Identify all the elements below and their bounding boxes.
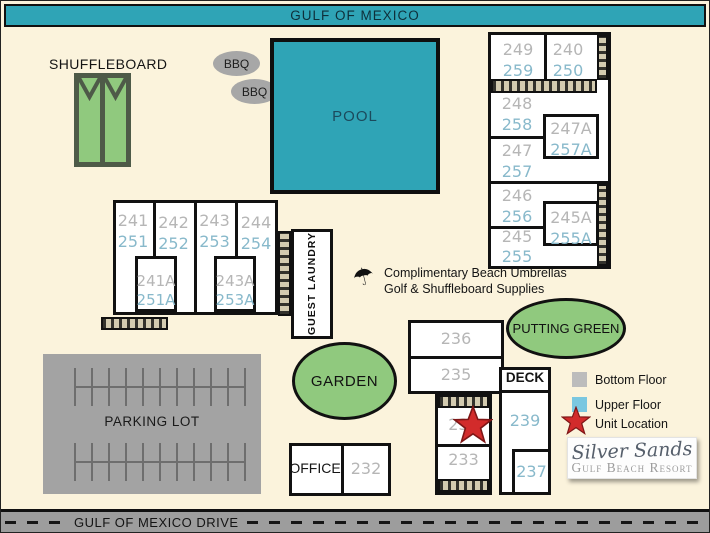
gulf-of-mexico-drive: GULF OF MEXICO DRIVE — [1, 509, 710, 533]
legend-bottom-floor-label: Bottom Floor — [595, 373, 667, 387]
parking-lot-label: PARKING LOT — [43, 414, 261, 429]
legend-bottom-floor-swatch — [572, 372, 587, 387]
wall — [491, 136, 546, 139]
walkway-hatch — [491, 79, 597, 93]
bbq-label: BBQ — [224, 57, 249, 71]
legend-upper-floor-label: Upper Floor — [595, 398, 661, 412]
unit-245-255: 245255 — [490, 227, 544, 267]
unit-247-257: 247257 — [490, 140, 544, 182]
gulf-of-mexico-banner: GULF OF MEXICO — [4, 4, 706, 27]
unit-243-253: 243253 — [194, 210, 235, 252]
unit-236: 236 — [408, 329, 504, 348]
unit-247A-257A: 247A257A — [544, 118, 598, 160]
garden: GARDEN — [292, 342, 397, 420]
guest-laundry: GUEST LAUNDRY — [291, 229, 333, 339]
putting-green-label: PUTTING GREEN — [513, 321, 620, 336]
garden-label: GARDEN — [311, 373, 378, 390]
unit-246-256: 246256 — [490, 185, 544, 227]
stairs-hatch — [597, 35, 608, 80]
legend-star-icon — [561, 406, 591, 436]
walkway-hatch — [101, 317, 168, 330]
gulf-of-mexico-drive-label: GULF OF MEXICO DRIVE — [69, 515, 244, 530]
deck-label: DECK — [499, 370, 551, 385]
umbrella-icon: ☂ — [350, 261, 378, 294]
unit-244-254: 244254 — [235, 212, 277, 254]
unit-235: 235 — [408, 365, 504, 384]
note-line-1: Complimentary Beach Umbrellas — [384, 266, 567, 280]
unit-242-252: 242252 — [153, 212, 194, 254]
unit-232: 232 — [341, 459, 391, 478]
note-line-2: Golf & Shuffleboard Supplies — [384, 282, 544, 296]
gulf-of-mexico-label: GULF OF MEXICO — [290, 8, 420, 23]
walkway-hatch — [438, 479, 489, 492]
pool-area: POOL — [270, 38, 440, 194]
legend-unit-location-label: Unit Location — [595, 417, 668, 431]
unit-248-258: 248258 — [490, 93, 544, 135]
pool-label: POOL — [332, 108, 378, 125]
office-label: OFFICE — [289, 460, 341, 476]
bbq-label: BBQ — [242, 85, 267, 99]
unit-241A-251A: 241A251A — [135, 272, 177, 310]
parking-lot: PARKING LOT — [43, 354, 261, 494]
stairs-hatch — [597, 184, 608, 266]
unit-240-250: 240250 — [541, 39, 595, 81]
shuffleboard-label: SHUFFLEBOARD — [49, 56, 167, 72]
resort-logo: Silver Sands Gulf Beach Resort — [567, 437, 697, 479]
shuffleboard-courts-icon — [74, 73, 131, 167]
guest-laundry-label: GUEST LAUNDRY — [306, 232, 318, 335]
unit-249-259: 249259 — [491, 39, 545, 81]
unit-245A-255A: 245A255A — [544, 207, 598, 249]
bbq-area-1: BBQ — [213, 51, 260, 76]
stairs-hatch — [278, 231, 291, 316]
unit-239: 239 — [502, 411, 548, 430]
putting-green: PUTTING GREEN — [506, 298, 626, 359]
logo-title: Silver Sands — [568, 438, 697, 464]
unit-241-251: 241251 — [113, 210, 153, 252]
unit-233: 233 — [438, 450, 489, 469]
wall — [411, 356, 501, 359]
unit-237: 237 — [515, 462, 548, 481]
unit-location-star-icon — [453, 405, 493, 445]
resort-site-map: GULF OF MEXICO SHUFFLEBOARD BBQ BBQ POOL… — [0, 0, 710, 533]
unit-243A-253A: 243A253A — [214, 272, 256, 310]
wall — [502, 390, 548, 393]
